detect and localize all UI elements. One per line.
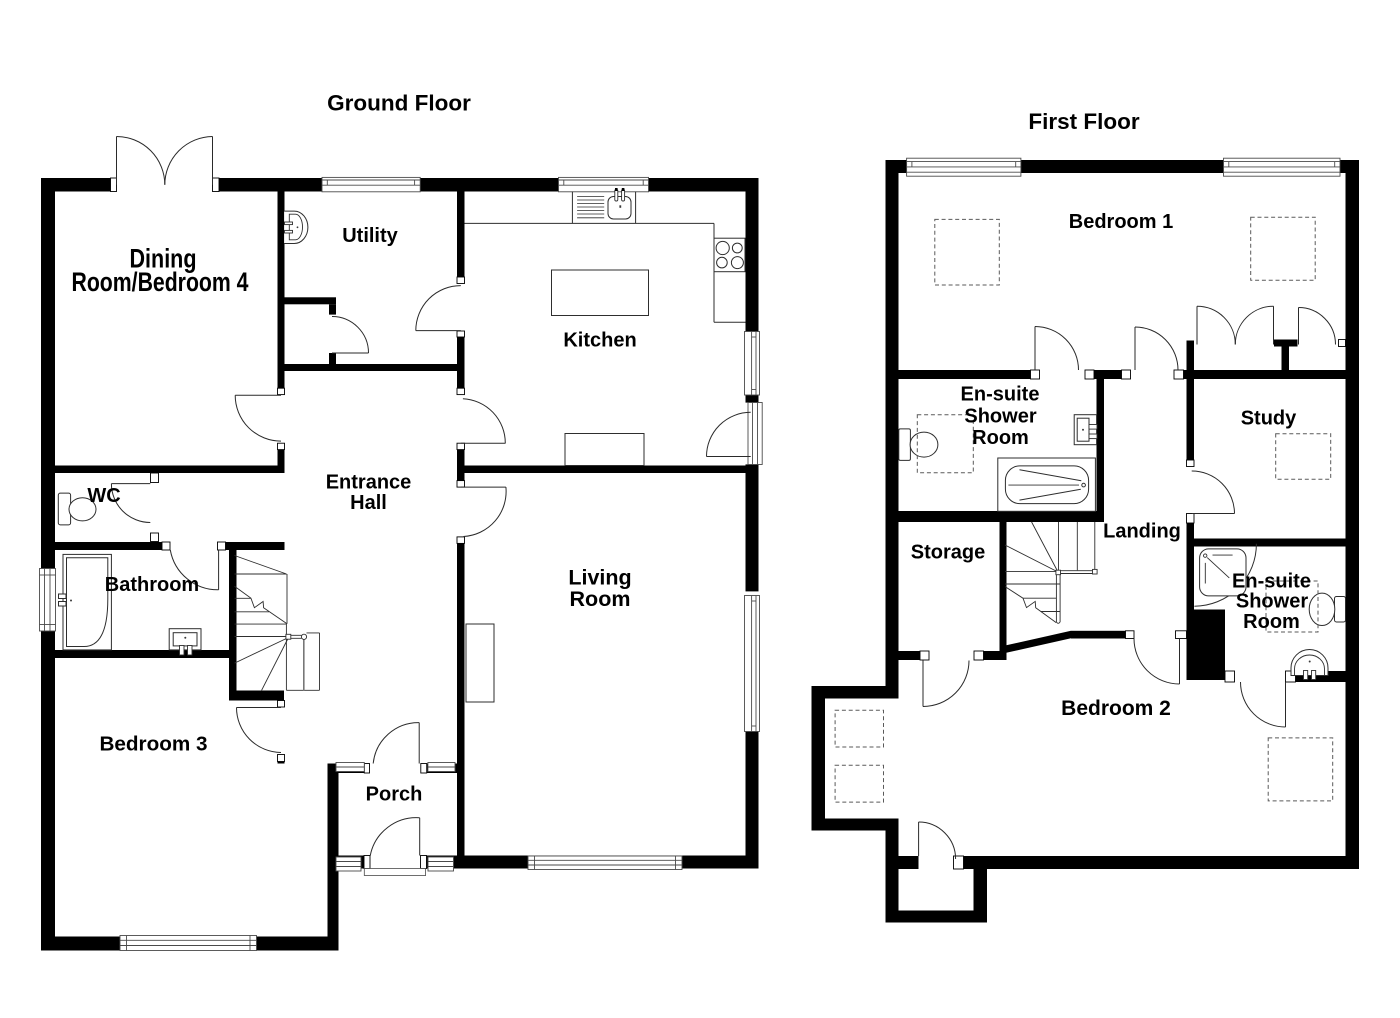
svg-text:Room/Bedroom 4: Room/Bedroom 4 — [72, 267, 249, 297]
svg-text:Landing: Landing — [1103, 521, 1181, 543]
svg-text:Hall: Hall — [350, 492, 387, 514]
svg-text:Bedroom 2: Bedroom 2 — [1061, 697, 1171, 720]
svg-text:Living: Living — [568, 566, 631, 590]
svg-text:Kitchen: Kitchen — [563, 330, 636, 352]
svg-text:Storage: Storage — [911, 542, 985, 564]
svg-text:Room: Room — [570, 587, 631, 611]
svg-text:Room: Room — [972, 427, 1029, 449]
svg-text:First Floor: First Floor — [1028, 109, 1139, 134]
svg-text:Shower: Shower — [1236, 591, 1308, 613]
svg-text:Bathroom: Bathroom — [105, 574, 199, 596]
svg-text:Ground Floor: Ground Floor — [327, 91, 471, 116]
svg-text:Porch: Porch — [366, 784, 423, 806]
svg-text:Utility: Utility — [342, 225, 398, 247]
svg-text:En-suite: En-suite — [961, 384, 1040, 406]
svg-text:Study: Study — [1241, 408, 1297, 430]
svg-text:Bedroom 3: Bedroom 3 — [99, 733, 207, 756]
svg-text:Entrance: Entrance — [326, 472, 412, 494]
svg-text:WC: WC — [87, 485, 120, 507]
svg-text:Bedroom 1: Bedroom 1 — [1069, 211, 1173, 233]
svg-text:Shower: Shower — [964, 406, 1036, 428]
svg-text:Room: Room — [1243, 611, 1300, 633]
svg-text:En-suite: En-suite — [1232, 571, 1311, 593]
